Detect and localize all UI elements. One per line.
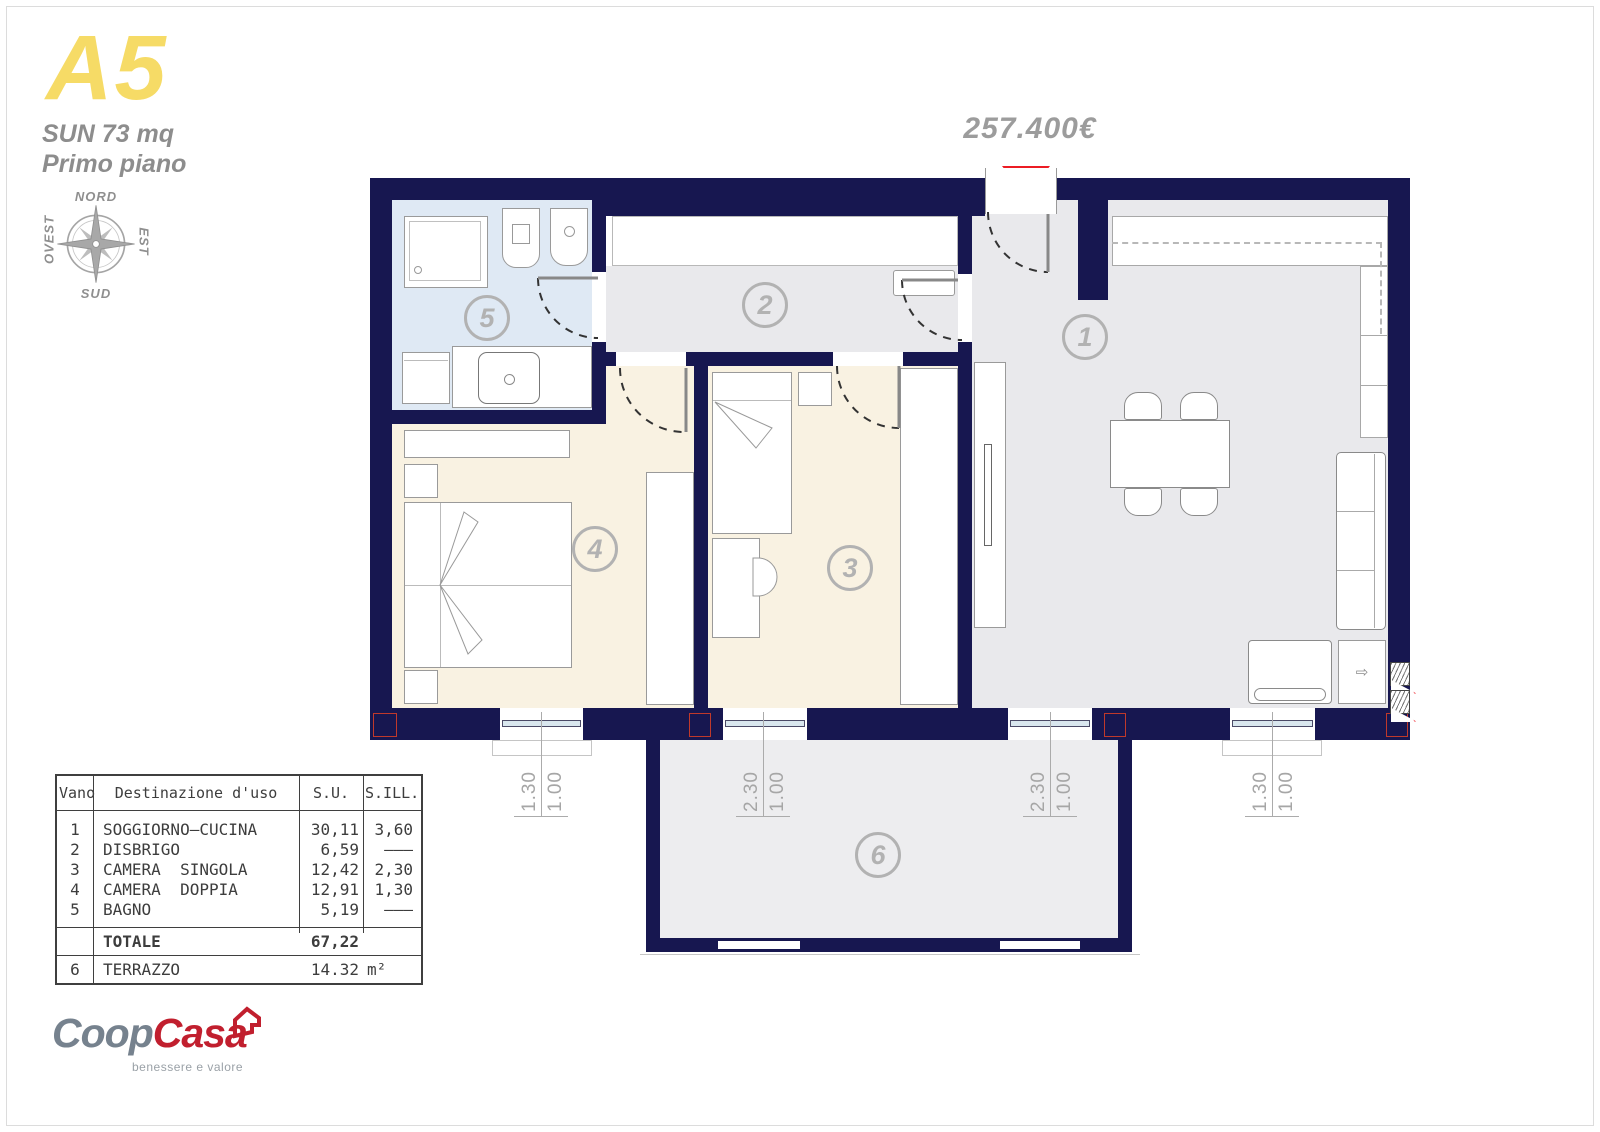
shower-drain-icon: [414, 266, 422, 274]
door-opening-bathroom: [592, 272, 606, 342]
dining-table: [1110, 420, 1230, 488]
col-header-sill: S.ILL.: [363, 776, 421, 810]
table-body: 1 SOGGIORNO—CUCINA 30,11 3,60 2 DISBRIGO…: [57, 811, 421, 927]
hall-closet: [612, 216, 958, 266]
nightstand: [404, 670, 438, 704]
nightstand: [404, 464, 438, 498]
compass-east-label: EST: [137, 222, 152, 262]
column-marker: [1104, 713, 1126, 737]
unit-code: A5: [46, 16, 168, 121]
room-badge-double-bedroom: 4: [572, 526, 618, 572]
window-glass: [725, 720, 805, 727]
wall-entry-pier: [1078, 200, 1108, 300]
window-sill: [492, 740, 592, 756]
washing-machine-line: [404, 360, 448, 361]
logo-tagline: benessere e valore: [132, 1060, 243, 1074]
counter-divider: [1361, 385, 1387, 386]
house-icon: [228, 1004, 264, 1040]
terrace-railing: [1000, 941, 1080, 949]
sofa-cushion-line: [1337, 511, 1374, 512]
entrance-door-opening: [985, 168, 1057, 214]
chair: [1124, 392, 1162, 420]
unit-area: SUN 73 mq: [42, 120, 174, 149]
table-row: 4 CAMERA DOPPIA 12,91 1,30: [57, 880, 421, 900]
upper-cabinets-dashed: [1112, 242, 1382, 244]
dresser: [404, 430, 570, 458]
compass-rose-icon: [54, 202, 138, 286]
table-row: 5 BAGNO 5,19 ———: [57, 900, 421, 920]
floorplan-page: A5 SUN 73 mq Primo piano NORD SUD EST OV…: [0, 0, 1600, 1132]
terrace-outline: [640, 954, 1140, 955]
room-schedule-table: Vano Destinazione d'uso S.U. S.ILL. 1 SO…: [55, 774, 423, 985]
table-column-rule: [363, 776, 364, 933]
chair: [1180, 392, 1218, 420]
desk: [712, 538, 760, 638]
kitchen-counter-side: [1360, 266, 1388, 438]
unit-floor: Primo piano: [42, 150, 186, 179]
room-badge-single-bedroom: 3: [827, 545, 873, 591]
wall: [370, 178, 985, 200]
kitchen-counter-top: [1112, 216, 1388, 266]
column-marker: [373, 713, 397, 737]
terrace-wall-right: [1118, 740, 1132, 952]
bidet-drain-icon: [564, 226, 575, 237]
column-marker: [689, 713, 711, 737]
bed-center-line: [405, 585, 571, 586]
wardrobe: [900, 368, 958, 705]
bidet: [550, 208, 588, 266]
room-badge-bathroom: 5: [464, 295, 510, 341]
tv: [984, 444, 992, 546]
compass-south-label: SUD: [64, 286, 128, 301]
terrace-railing: [718, 941, 800, 949]
toilet-tank: [512, 224, 530, 244]
chair: [1180, 488, 1218, 516]
sofa-back-line: [1374, 454, 1375, 628]
nightstand: [798, 372, 832, 406]
bed-pillow-line: [713, 400, 791, 401]
coopcasa-logo: CoopCasa: [52, 1010, 247, 1057]
washbasin-drain-icon: [504, 374, 515, 385]
shaft-duct: [1390, 662, 1410, 686]
table-row: 3 CAMERA SINGOLA 12,42 2,30: [57, 860, 421, 880]
room-badge-terrace: 6: [855, 832, 901, 878]
table-terrace-row: 6 TERRAZZO 14.32 m²: [57, 955, 421, 983]
wall: [592, 200, 985, 216]
wall: [370, 178, 392, 740]
wall-living: [958, 352, 972, 708]
terrace-wall-left: [646, 740, 660, 952]
col-header-su: S.U.: [299, 776, 363, 810]
side-table: ⇨: [1338, 640, 1386, 704]
table-row: 1 SOGGIORNO—CUCINA 30,11 3,60: [57, 820, 421, 840]
room-badge-living: 1: [1062, 314, 1108, 360]
col-header-dest: Destinazione d'uso: [93, 776, 299, 810]
table-column-rule: [299, 776, 300, 933]
col-header-vano: Vano: [57, 776, 93, 810]
wall-bathroom: [392, 410, 606, 424]
armchair-cushion: [1254, 688, 1326, 701]
sofa-cushion-line: [1337, 570, 1374, 571]
wall: [1388, 178, 1410, 740]
upper-cabinets-dashed: [1380, 242, 1382, 334]
counter-divider: [1361, 335, 1387, 336]
hall-cabinet: [893, 270, 955, 296]
table-column-rule: [93, 776, 94, 983]
door-opening-double-bedroom: [616, 352, 686, 366]
price-label: 257.400€: [940, 112, 1120, 146]
shaft-duct: [1390, 690, 1410, 714]
wardrobe: [646, 472, 694, 705]
table-total-row: TOTALE 67,22: [57, 927, 421, 955]
room-double-bedroom-floor-upper: [606, 366, 694, 424]
wall-bedrooms: [694, 366, 708, 708]
single-bed: [712, 372, 792, 534]
door-opening-living: [958, 274, 972, 342]
table-header-row: Vano Destinazione d'uso S.U. S.ILL.: [57, 776, 421, 811]
door-opening-single-bedroom: [833, 352, 903, 366]
sofa: [1336, 452, 1386, 630]
room-badge-hall: 2: [742, 282, 788, 328]
wall: [1057, 178, 1410, 200]
table-row: 2 DISBRIGO 6,59 ———: [57, 840, 421, 860]
chair: [1124, 488, 1162, 516]
